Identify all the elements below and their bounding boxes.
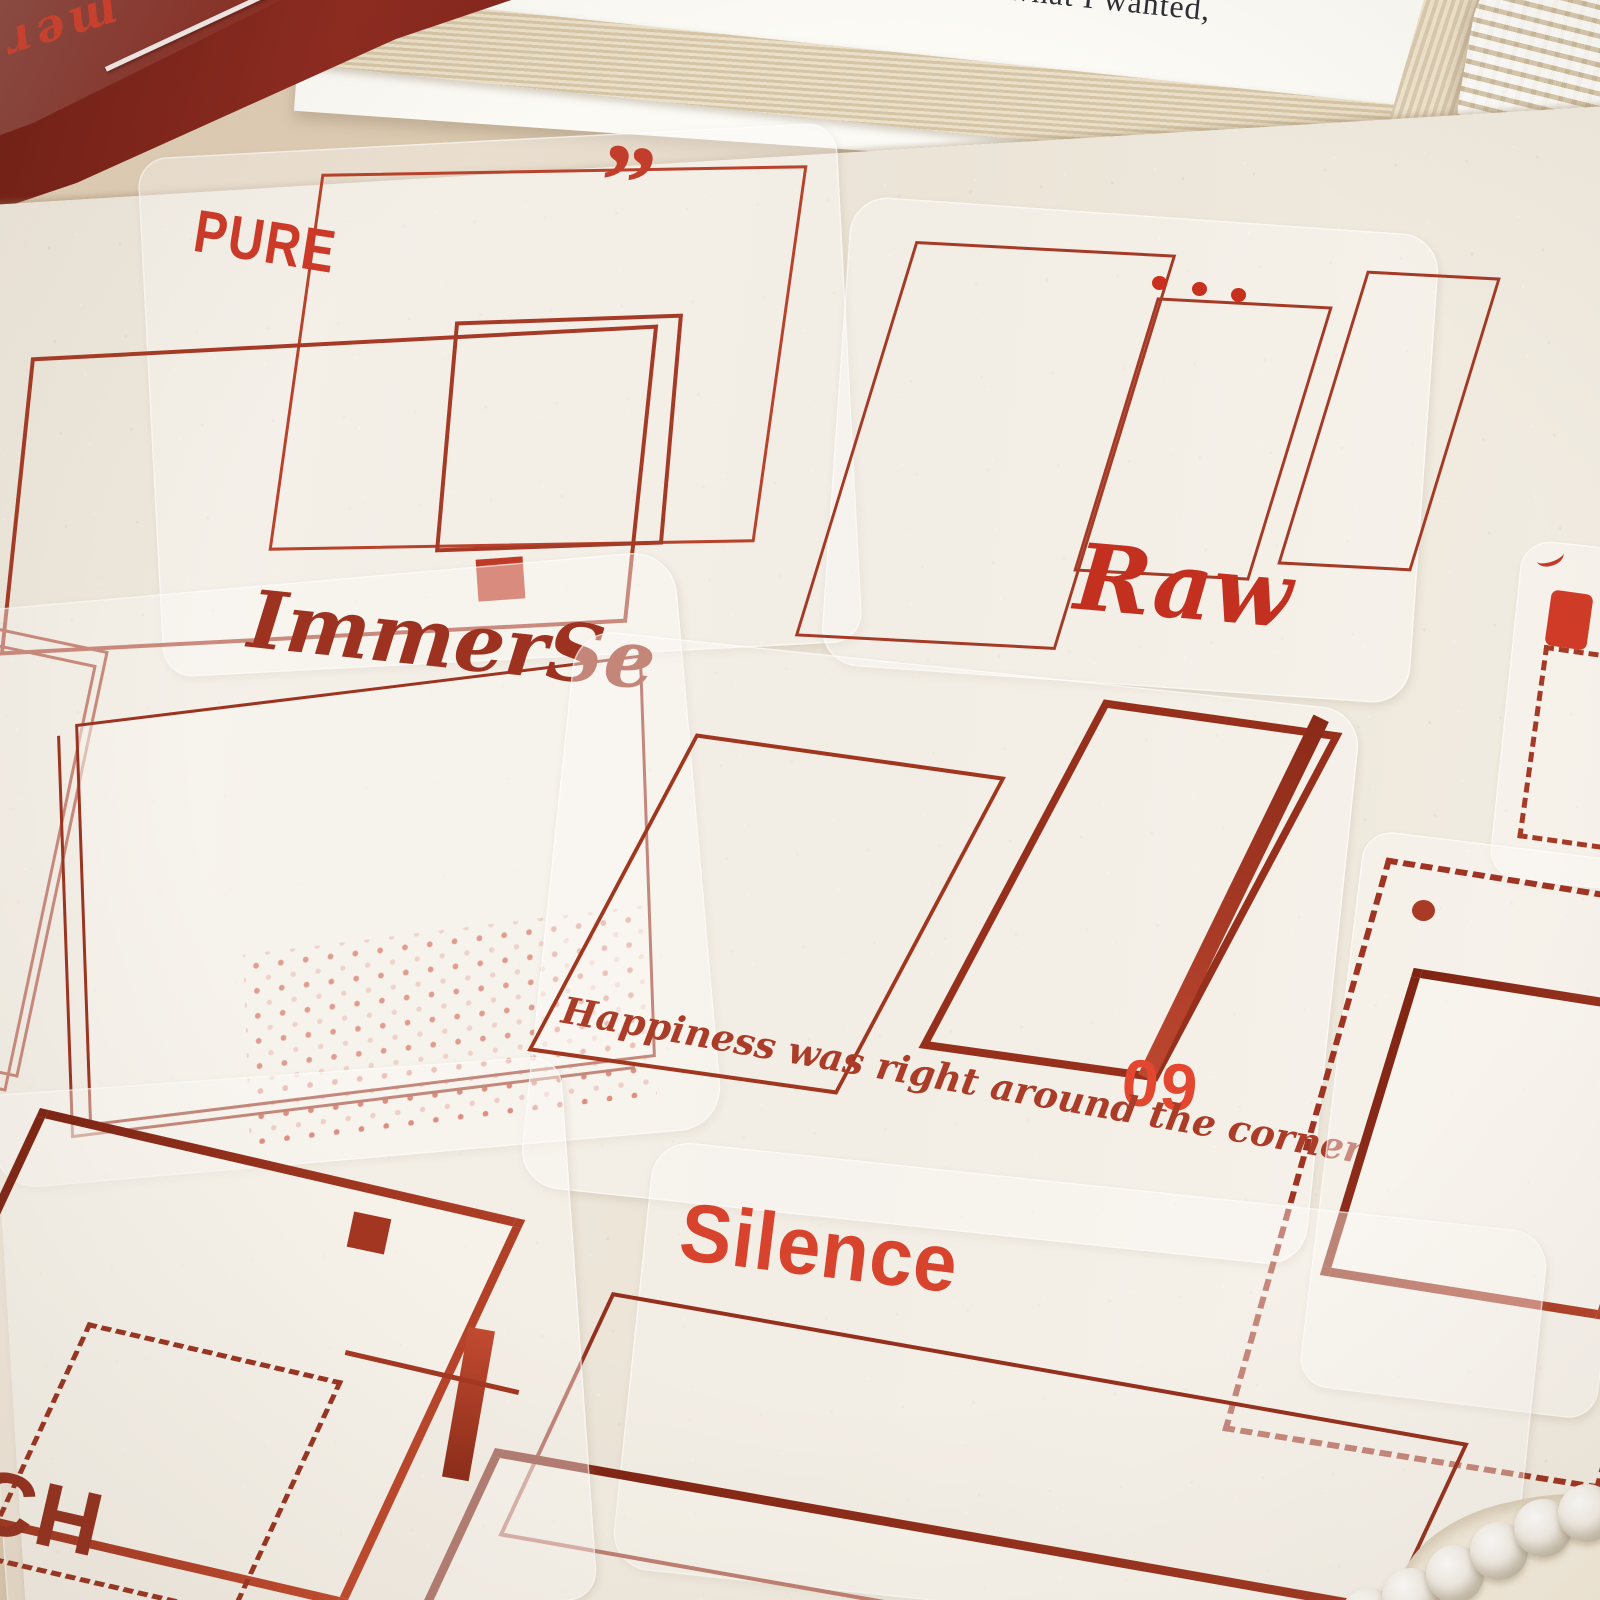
book-text-line: figure out what I wanted, [863,0,1213,28]
dot-icon [1412,900,1435,921]
dot-icon [1192,282,1207,296]
frame [435,314,683,553]
red-letter-fragment [1544,589,1593,650]
solid-square-accent [347,1211,392,1254]
quote-mark-icon: ” [594,125,660,240]
photo-scene: figure out what I wanted, mer PURE ” Raw [0,0,1600,1600]
dot-icon [1152,276,1167,290]
raw-label: Raw [1071,531,1296,642]
dot-icon [1231,288,1246,302]
